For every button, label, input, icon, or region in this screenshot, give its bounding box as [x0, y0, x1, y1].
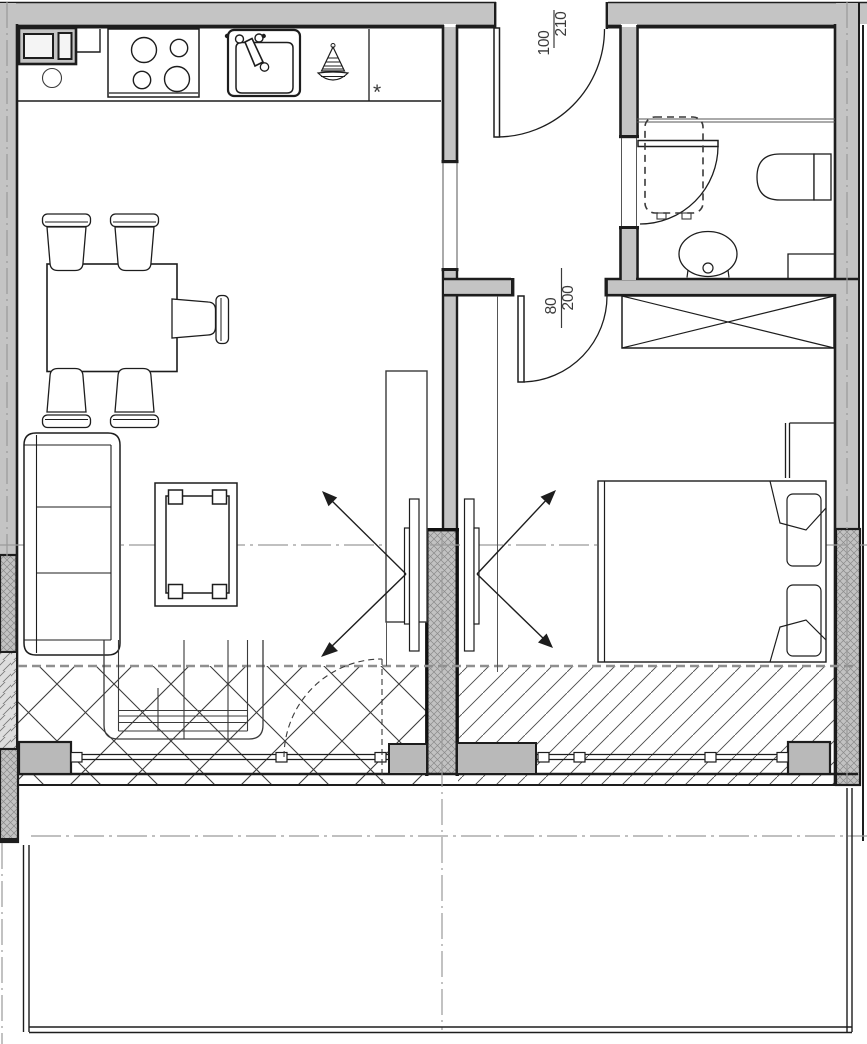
svg-text:100: 100 — [536, 30, 553, 56]
svg-text:*: * — [373, 81, 381, 104]
svg-text:80: 80 — [543, 297, 560, 314]
svg-text:200: 200 — [560, 285, 577, 311]
svg-text:210: 210 — [553, 11, 570, 37]
